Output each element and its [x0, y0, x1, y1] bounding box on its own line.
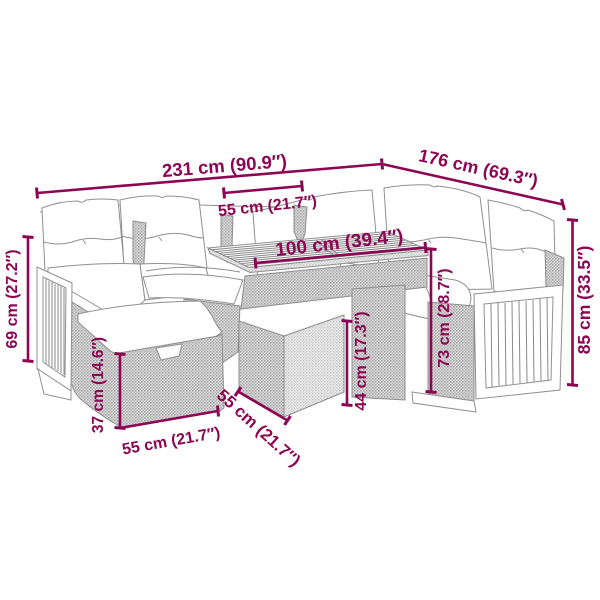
svg-text:73 cm (28.7″): 73 cm (28.7″) [436, 268, 453, 367]
svg-text:85 cm (33.5″): 85 cm (33.5″) [574, 246, 594, 355]
svg-text:69 cm (27.2″): 69 cm (27.2″) [4, 249, 21, 348]
svg-text:37 cm (14.6″): 37 cm (14.6″) [90, 337, 107, 433]
svg-text:44 cm (17.3″): 44 cm (17.3″) [353, 311, 370, 410]
